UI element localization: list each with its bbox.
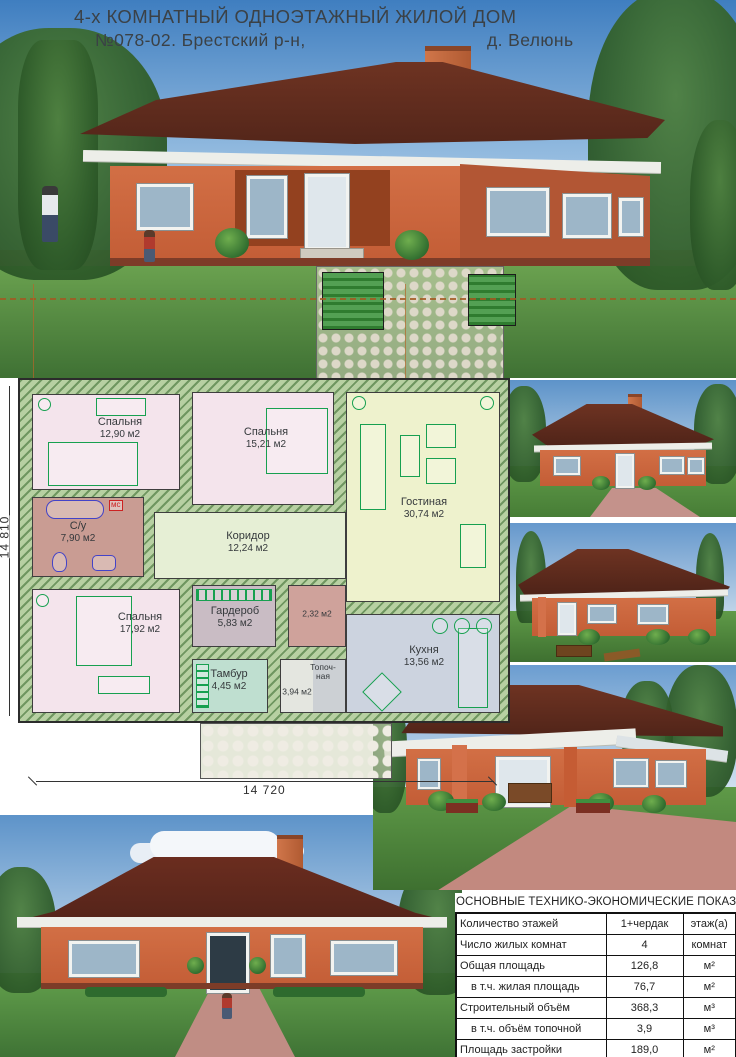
- terrace-door: [558, 603, 576, 635]
- render-perspective-front: [510, 380, 736, 517]
- dimension-height-label: 14 810: [0, 516, 11, 559]
- sink: [92, 555, 116, 571]
- axis-line: [33, 284, 34, 378]
- house-illustration: [95, 52, 655, 267]
- dimension-line-width: [36, 781, 494, 782]
- window: [69, 941, 139, 977]
- topiary-plant: [187, 957, 204, 974]
- toilet: [52, 552, 67, 572]
- spec-table-block: ОСНОВНЫЕ ТЕХНИКО-ЭКОНОМИЧЕСКИЕ ПОКАЗАТЕЛ…: [455, 893, 736, 1057]
- row-label: Общая площадь: [456, 956, 606, 977]
- bar-stool: [454, 618, 470, 634]
- row-label: Площадь застройки: [456, 1040, 606, 1057]
- row-unit: этаж(а): [683, 913, 736, 935]
- floor-plan: мс Спальня12,90 м2 Спальня15,21 м2 Гости…: [18, 378, 510, 723]
- row-label: в т.ч. объём топочной: [456, 1019, 606, 1040]
- table-row: Общая площадь 126,8 м²: [456, 956, 736, 977]
- roof: [518, 549, 730, 595]
- furniture-desk: [96, 398, 146, 416]
- planter-box: [576, 799, 610, 813]
- porch-pillar: [564, 747, 577, 807]
- row-value: 76,7: [606, 977, 683, 998]
- bathtub: [46, 500, 104, 519]
- row-label: Количество этажей: [456, 913, 606, 935]
- table-row: Строительный объём 368,3 м³: [456, 998, 736, 1019]
- room-label-bedroom-2: Спальня15,21 м2: [244, 426, 288, 450]
- row-value: 4: [606, 935, 683, 956]
- house-illustration: [532, 394, 714, 490]
- shrub: [646, 629, 670, 645]
- roof-fascia: [17, 917, 447, 927]
- row-label: Строительный объём: [456, 998, 606, 1019]
- room-label-bedroom-3: Спальня17,92 м2: [118, 611, 162, 635]
- planting-square: [468, 274, 516, 326]
- furniture-coffee-table: [400, 435, 420, 477]
- room-label-corridor: Коридор12,24 м2: [226, 530, 269, 554]
- window: [660, 457, 684, 474]
- table-row: Количество этажей 1+чердак этаж(а): [456, 913, 736, 935]
- row-unit: м²: [683, 977, 736, 998]
- spec-table-title: ОСНОВНЫЕ ТЕХНИКО-ЭКОНОМИЧЕСКИЕ ПОКАЗАТЕЛ…: [455, 893, 736, 912]
- porch-pillar: [538, 597, 546, 637]
- person-adult: [42, 186, 58, 242]
- furniture-sofa: [360, 424, 386, 510]
- window: [619, 198, 643, 236]
- room-label-kitchen: Кухня13,56 м2: [404, 644, 444, 668]
- washing-machine-label: мс: [109, 500, 123, 511]
- plant: [480, 396, 494, 410]
- page-title-line2-right: д. Велюнь: [487, 30, 573, 51]
- window: [656, 761, 686, 787]
- house-illustration: [518, 541, 730, 645]
- row-value: 126,8: [606, 956, 683, 977]
- person-child: [222, 993, 232, 1019]
- planting-square: [322, 272, 384, 330]
- room-label-vestibule: Тамбур4,45 м2: [210, 668, 247, 692]
- bar-stool: [432, 618, 448, 634]
- room-label-bathroom: С/у7,90 м2: [61, 520, 96, 544]
- project-sheet: 4-х КОМНАТНЫЙ ОДНОЭТАЖНЫЙ ЖИЛОЙ ДОМ №078…: [0, 0, 736, 1057]
- page-title-line1: 4-х КОМНАТНЫЙ ОДНОЭТАЖНЫЙ ЖИЛОЙ ДОМ: [74, 6, 516, 28]
- shrub: [638, 476, 656, 490]
- shrub: [395, 230, 429, 260]
- table-row: в т.ч. объём топочной 3,9 м³: [456, 1019, 736, 1040]
- person-child: [144, 230, 155, 262]
- furniture-bed: [48, 442, 138, 486]
- row-unit: м²: [683, 956, 736, 977]
- window: [487, 188, 549, 236]
- plan-bottom-zone: 14 720: [18, 723, 510, 815]
- render-perspective-rear: [510, 523, 736, 662]
- row-value: 1+чердак: [606, 913, 683, 935]
- shrub: [688, 629, 710, 645]
- row-unit: м³: [683, 998, 736, 1019]
- window: [554, 457, 580, 475]
- row-unit: м²: [683, 1040, 736, 1057]
- table-row: Число жилых комнат 4 комнат: [456, 935, 736, 956]
- kitchen-counter: [458, 628, 488, 708]
- page-title-line2-left: №078-02. Брестский р-н,: [95, 30, 306, 51]
- window: [563, 194, 611, 238]
- row-value: 3,9: [606, 1019, 683, 1040]
- room-label-bedroom-1: Спальня12,90 м2: [98, 416, 142, 440]
- window: [331, 941, 397, 975]
- entrance-door: [616, 454, 634, 488]
- plant: [38, 398, 51, 411]
- window: [638, 605, 668, 624]
- entrance-door: [305, 174, 349, 250]
- row-unit: комнат: [683, 935, 736, 956]
- roof: [80, 62, 665, 162]
- furniture-tv-stand: [460, 524, 486, 568]
- axis-line: [0, 298, 736, 300]
- plan-left-dimension: 14 810: [0, 378, 18, 723]
- porch-window: [247, 176, 287, 238]
- plant: [352, 396, 366, 410]
- room-label-living: Гостиная30,74 м2: [401, 496, 447, 520]
- porch-plan: [200, 723, 392, 779]
- row-unit: м³: [683, 1019, 736, 1040]
- row-value: 368,3: [606, 998, 683, 1019]
- table-row: Площадь застройки 189,0 м²: [456, 1040, 736, 1057]
- furniture-armchair: [426, 458, 456, 484]
- room-label-3-94: 3,94 м2: [282, 688, 311, 697]
- axis-line: [405, 284, 406, 378]
- bar-stool: [476, 618, 492, 634]
- room-label-wardrobe: Гардероб5,83 м2: [211, 605, 259, 629]
- room-label-boiler: Топоч-ная: [306, 663, 340, 681]
- shrub: [592, 476, 610, 490]
- row-label: в т.ч. жилая площадь: [456, 977, 606, 998]
- window: [271, 935, 305, 977]
- shrub: [215, 228, 249, 258]
- row-value: 189,0: [606, 1040, 683, 1057]
- terrace-furniture: [508, 783, 552, 803]
- table-row: в т.ч. жилая площадь 76,7 м²: [456, 977, 736, 998]
- render-main-exterior: [0, 0, 736, 378]
- hedge: [85, 987, 167, 997]
- roof: [532, 404, 714, 448]
- furniture-armchair: [426, 424, 456, 448]
- vestibule-closet: [196, 664, 209, 708]
- hedge: [273, 987, 365, 997]
- shrub: [578, 629, 600, 645]
- plinth: [110, 258, 650, 266]
- window: [588, 605, 616, 623]
- furniture-desk: [98, 676, 150, 694]
- spec-table: Количество этажей 1+чердак этаж(а) Число…: [455, 912, 736, 1057]
- room-label-storage: 2,32 м2: [302, 610, 331, 619]
- tree: [690, 120, 736, 290]
- window: [688, 458, 704, 474]
- plant: [36, 594, 49, 607]
- dimension-width-label: 14 720: [240, 783, 289, 797]
- window: [137, 184, 193, 230]
- window: [614, 759, 648, 787]
- topiary-plant: [249, 957, 266, 974]
- wardrobe-shelves: [196, 589, 272, 601]
- shrub: [642, 795, 666, 813]
- row-label: Число жилых комнат: [456, 935, 606, 956]
- garden-bench: [556, 645, 592, 657]
